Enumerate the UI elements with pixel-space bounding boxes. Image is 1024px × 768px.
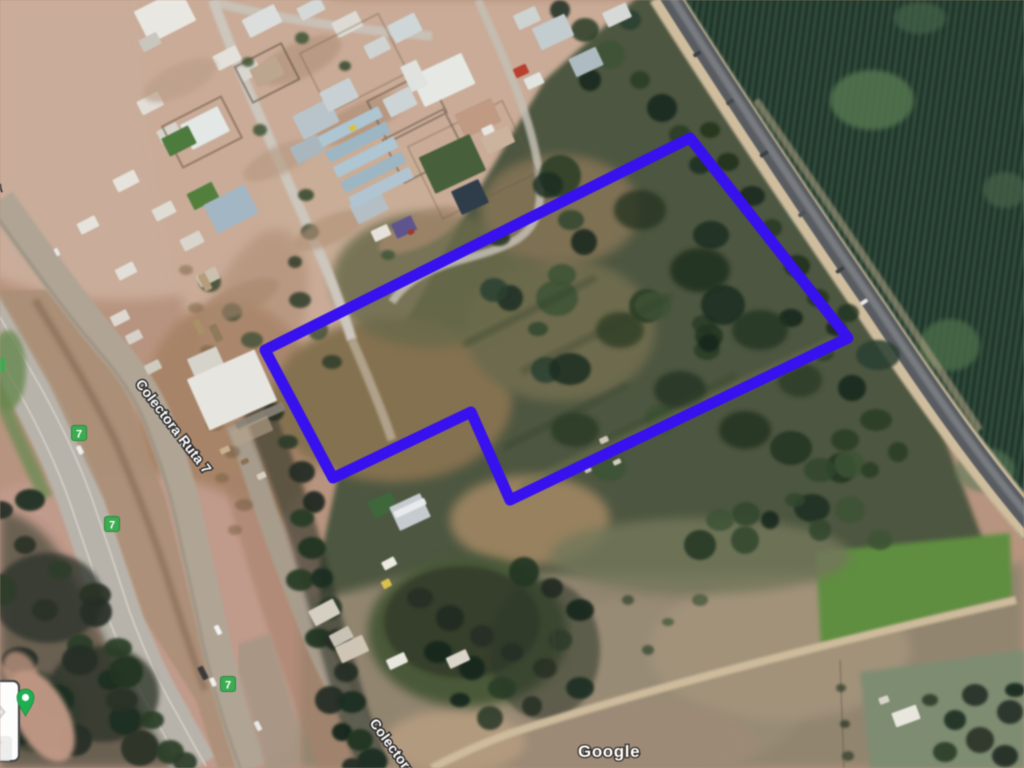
svg-text:7: 7 xyxy=(109,520,115,532)
svg-text:Google: Google xyxy=(578,742,640,761)
svg-text:7: 7 xyxy=(225,680,231,692)
svg-text:7: 7 xyxy=(76,429,82,441)
